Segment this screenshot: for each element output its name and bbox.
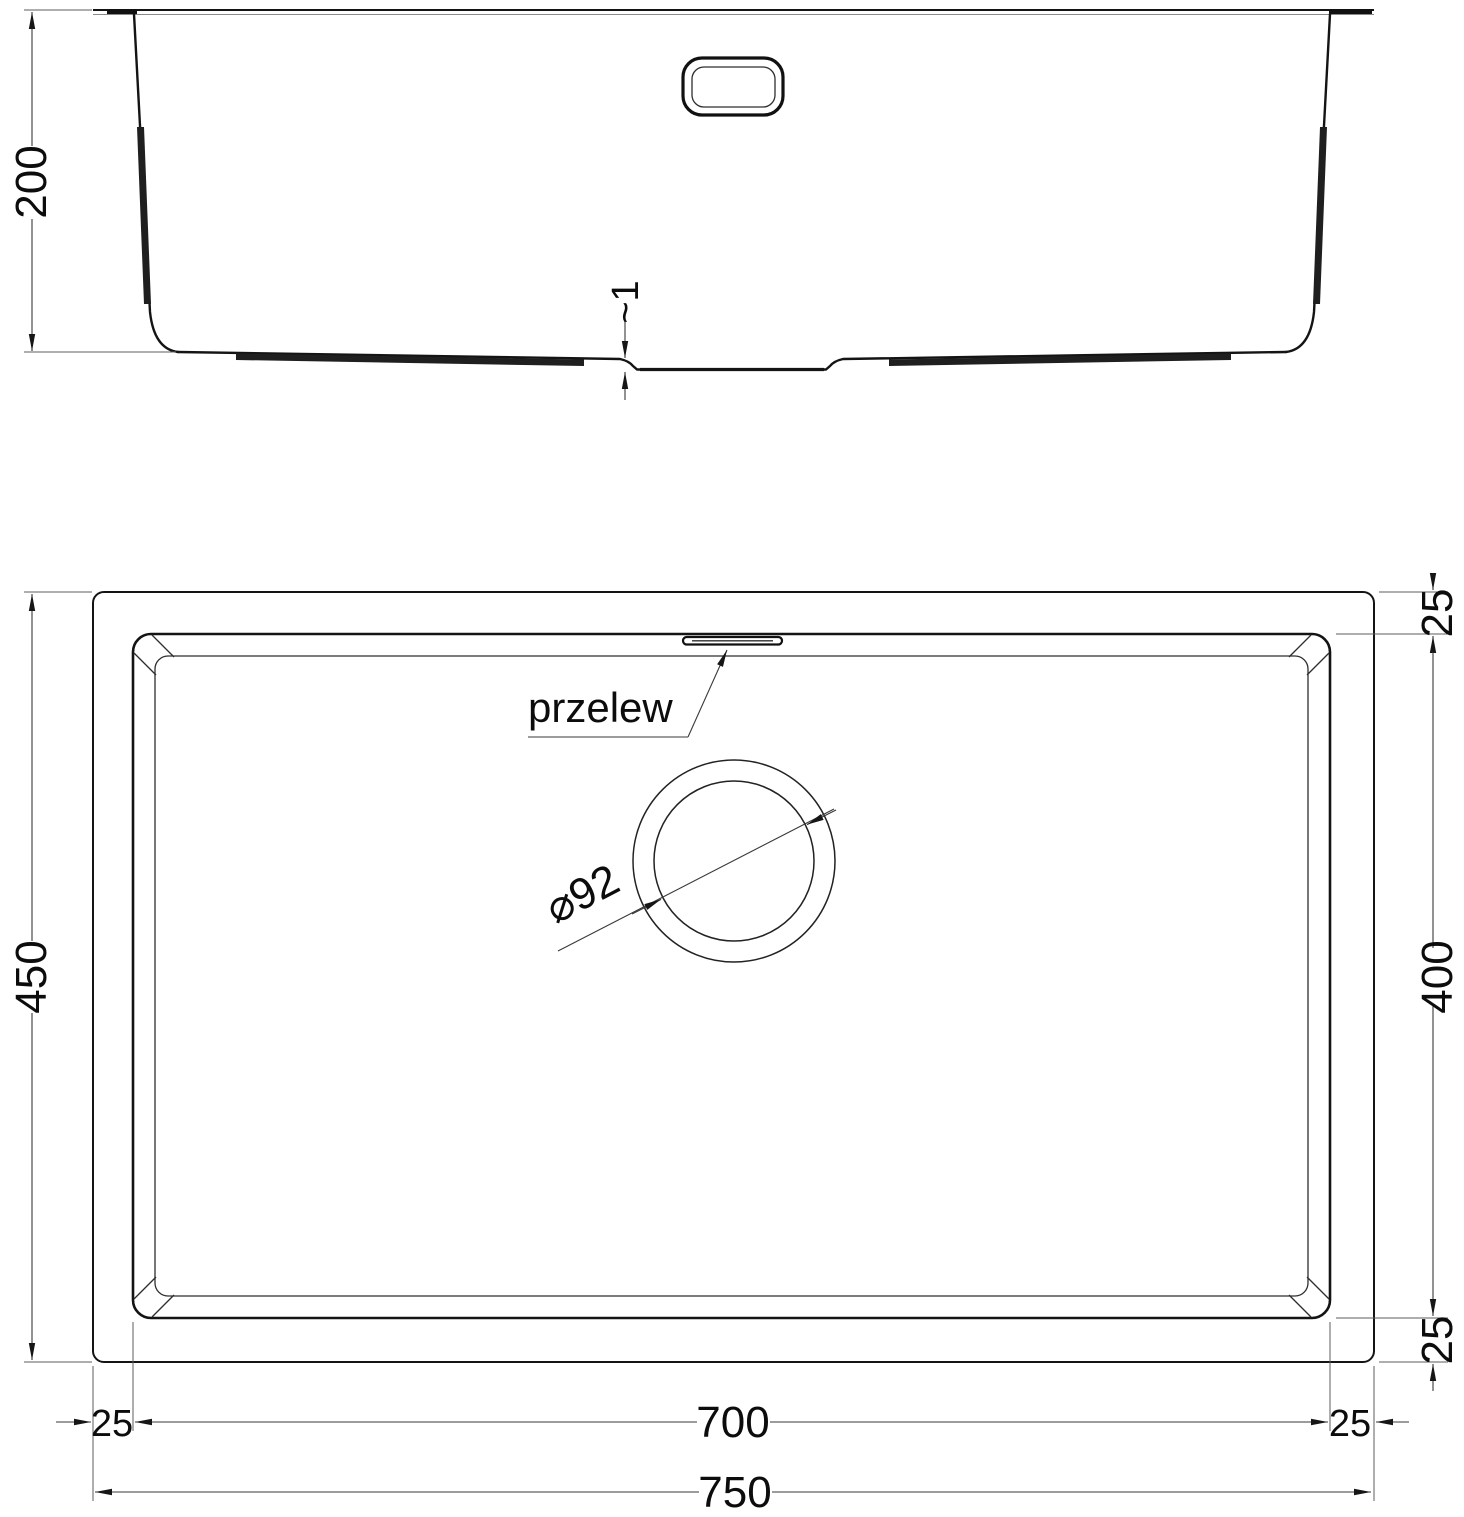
dim-overall-depth-label: 450 (7, 940, 56, 1013)
overflow-callout: przelew (528, 650, 727, 737)
dim-rim-left-label: 25 (91, 1403, 133, 1445)
dimension-arrow (807, 810, 836, 825)
overflow-label: przelew (528, 684, 673, 731)
dim-drain-diameter-label: ⌀92 (538, 855, 628, 933)
plan-dimension-bottom-rows: 25 700 25 750 (56, 1322, 1409, 1517)
dim-rim-right-label: 25 (1329, 1403, 1371, 1445)
dim-bowl-width-label: 700 (696, 1398, 769, 1447)
drawing-canvas: 200 ~1 przelew (0, 0, 1464, 1517)
plan-bowl-inner-edge (155, 656, 1308, 1296)
plan-view: przelew ⌀92 450 (7, 574, 1462, 1517)
dim-bowl-depth-label: 400 (1413, 940, 1462, 1013)
side-wall-pad-left (137, 127, 151, 304)
plan-dimension-overall-depth: 450 (7, 592, 92, 1362)
plan-outer-rim (93, 592, 1374, 1362)
side-wall-pad-right (1313, 127, 1327, 304)
side-overflow-inner-outline (692, 67, 775, 107)
plan-bowl-outer-edge (133, 634, 1330, 1318)
side-section-view: 200 ~1 (7, 10, 1374, 400)
dim-rim-bottom-right-label: 25 (1413, 1316, 1462, 1365)
dim-depth-label: 200 (7, 145, 56, 218)
sink-technical-drawing: 200 ~1 przelew (0, 0, 1464, 1517)
drain: ⌀92 (538, 760, 836, 962)
dim-floor-step-label: ~1 (605, 280, 647, 323)
plan-bowl-corner-chamfers (134, 635, 1329, 1317)
leader-arrow (688, 650, 727, 737)
dim-overall-width-label: 750 (698, 1468, 771, 1517)
plan-dimension-right-column: 25 400 25 (1336, 574, 1462, 1391)
dim-rim-top-right-label: 25 (1413, 589, 1462, 638)
side-dimension-floor-step: ~1 (605, 280, 647, 400)
